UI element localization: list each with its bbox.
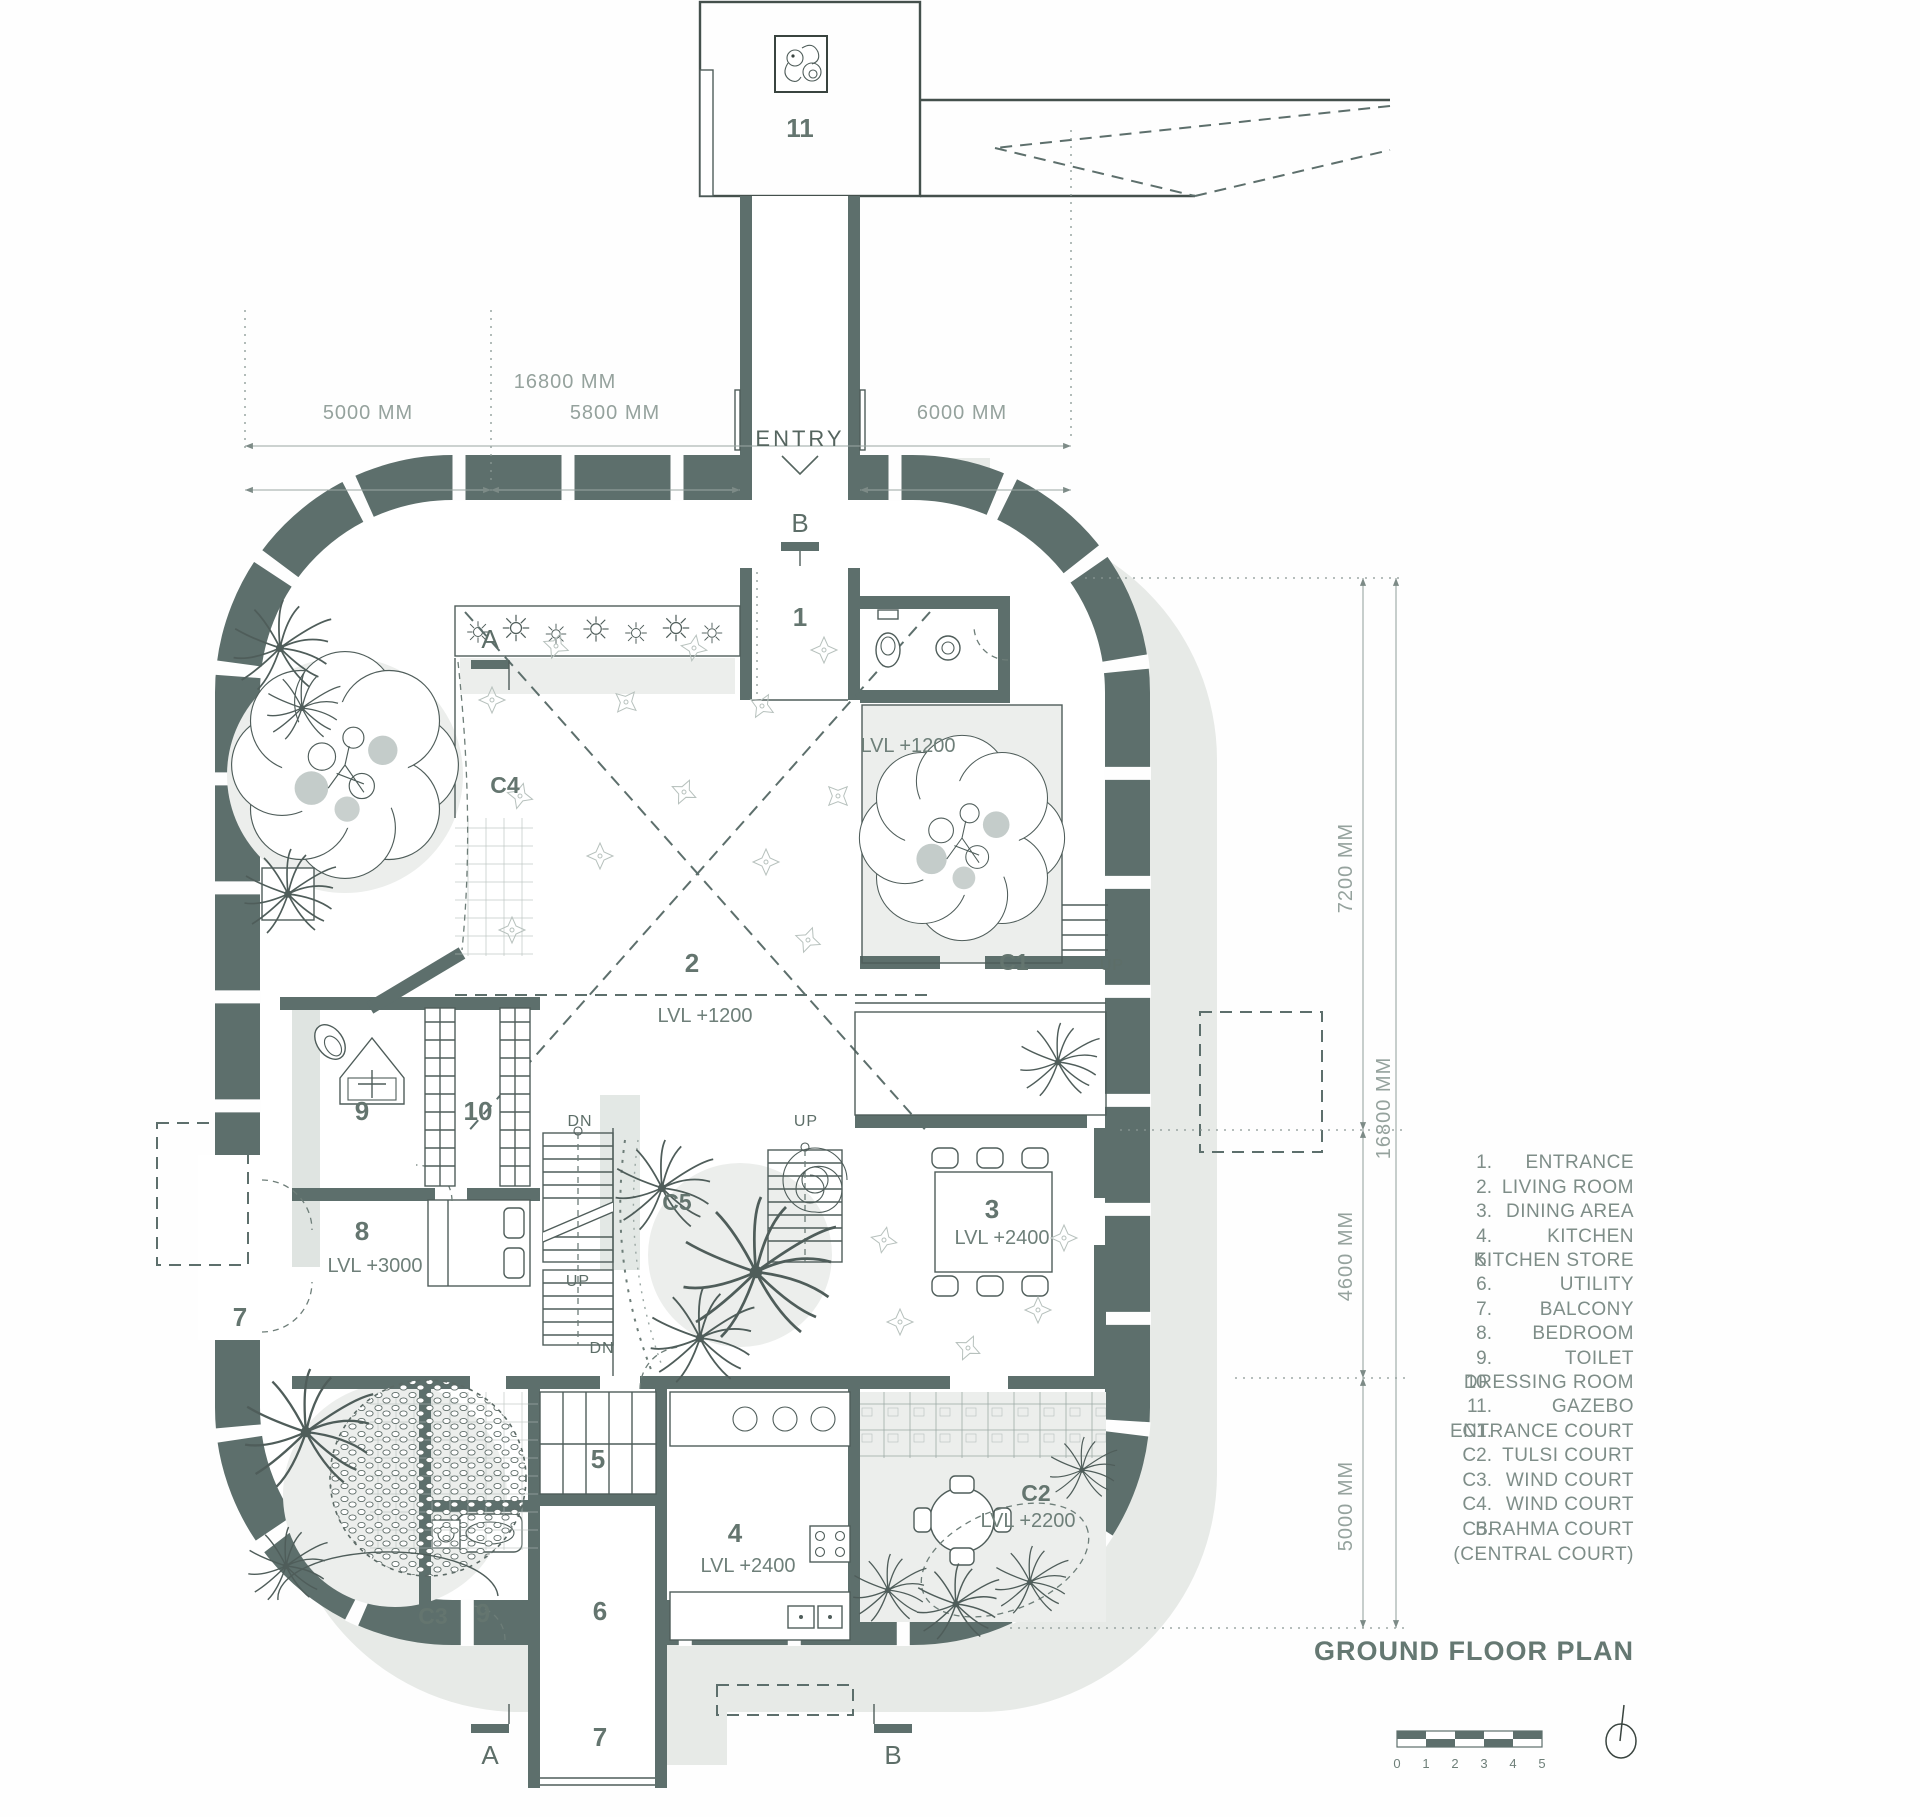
legend-num: C4. bbox=[1462, 1494, 1492, 1515]
room-label-living: 2 bbox=[685, 948, 699, 978]
dim-top-total: 16800 MM bbox=[514, 371, 617, 393]
section-b-top: B bbox=[791, 508, 808, 538]
court-label-c2: C2 bbox=[1021, 1480, 1050, 1506]
page-title: GROUND FLOOR PLAN bbox=[1314, 1636, 1634, 1666]
room-label-balcony-left: 7 bbox=[233, 1302, 247, 1332]
section-b-bottom: B bbox=[884, 1740, 901, 1770]
court-label-c3: C3 bbox=[418, 1603, 447, 1629]
north-indicator bbox=[1606, 1705, 1636, 1758]
legend-label: LIVING ROOM bbox=[1502, 1177, 1634, 1198]
stair-dn-1: DN bbox=[567, 1113, 592, 1130]
room-label-entrance: 1 bbox=[793, 602, 807, 632]
court-label-c5: C5 bbox=[662, 1189, 692, 1215]
stair-up-3: UP bbox=[1100, 957, 1124, 974]
court-label-c4: C4 bbox=[490, 772, 520, 798]
room-label-dining: 3 bbox=[985, 1194, 999, 1224]
legend-label: BALCONY bbox=[1540, 1299, 1634, 1320]
level-tulsi: LVL +2200 bbox=[980, 1510, 1075, 1532]
legend-label: ENTRANCE COURT bbox=[1450, 1421, 1634, 1442]
driveway-lines bbox=[920, 100, 1390, 196]
scale-tick: 1 bbox=[1422, 1756, 1429, 1771]
room-label-toilet-top: 9 bbox=[355, 1096, 369, 1126]
room-label-kitchen: 4 bbox=[728, 1518, 743, 1548]
gazebo-elephant-icon bbox=[775, 36, 827, 92]
level-dining: LVL +2400 bbox=[954, 1227, 1049, 1249]
legend-num: 11. bbox=[1467, 1396, 1492, 1417]
dim-top-5800: 5800 MM bbox=[570, 402, 660, 424]
section-a-top: A bbox=[481, 624, 499, 654]
room-kitchen-store bbox=[540, 1392, 656, 1494]
scale-tick: 0 bbox=[1393, 1756, 1400, 1771]
room-label-balcony-bottom: 7 bbox=[593, 1722, 607, 1752]
floor-plan-canvas: 16800 MM 5000 MM 5800 MM 6000 MM 7200 MM… bbox=[0, 0, 1920, 1817]
legend-num: 3. bbox=[1476, 1201, 1492, 1222]
legend-num: C3. bbox=[1462, 1470, 1492, 1491]
room-label-bedroom: 8 bbox=[355, 1216, 369, 1246]
legend-note: (CENTRAL COURT) bbox=[1453, 1544, 1634, 1565]
dim-right-7200: 7200 MM bbox=[1335, 823, 1357, 913]
level-kitchen: LVL +2400 bbox=[700, 1555, 795, 1577]
entry-label: ENTRY bbox=[755, 426, 844, 451]
legend-num: 9. bbox=[1476, 1348, 1492, 1369]
legend-num: 1. bbox=[1476, 1152, 1492, 1173]
legend-label: WIND COURT bbox=[1506, 1470, 1634, 1491]
dim-right-5000: 5000 MM bbox=[1335, 1461, 1357, 1551]
room-entrance bbox=[752, 568, 848, 700]
stair-up-2: UP bbox=[566, 1273, 590, 1290]
scale-tick: 3 bbox=[1480, 1756, 1487, 1771]
legend-label: WIND COURT bbox=[1506, 1494, 1634, 1515]
court-label-c1: C1 bbox=[999, 949, 1029, 975]
legend-label: DRESSING ROOM bbox=[1464, 1372, 1634, 1393]
legend-label: BRAHMA COURT bbox=[1475, 1519, 1634, 1540]
legend-label: TULSI COURT bbox=[1502, 1445, 1634, 1466]
room-label-store: 5 bbox=[591, 1444, 605, 1474]
legend-num: 4. bbox=[1476, 1226, 1492, 1247]
stair-up-1: UP bbox=[794, 1113, 818, 1130]
ground-floor-plan-sheet: 16800 MM 5000 MM 5800 MM 6000 MM 7200 MM… bbox=[0, 0, 1920, 1817]
level-entrance-court: LVL +1200 bbox=[860, 735, 955, 757]
room-label-gazebo: 11 bbox=[786, 113, 814, 143]
section-a-bottom: A bbox=[481, 1740, 499, 1770]
dim-right-total: 16800 MM bbox=[1373, 1057, 1395, 1160]
legend-label: TOILET bbox=[1565, 1348, 1634, 1369]
dim-top-5000: 5000 MM bbox=[323, 402, 413, 424]
dim-top-6000: 6000 MM bbox=[917, 402, 1007, 424]
legend-label: KITCHEN STORE bbox=[1474, 1250, 1634, 1271]
level-living: LVL +1200 bbox=[657, 1005, 752, 1027]
legend-label: DINING AREA bbox=[1506, 1201, 1634, 1222]
legend-label: KITCHEN bbox=[1547, 1226, 1634, 1247]
legend: 1. ENTRANCE 2. LIVING ROOM 3. DINING ARE… bbox=[1450, 1152, 1634, 1565]
dim-right-4600: 4600 MM bbox=[1335, 1211, 1357, 1301]
legend-num: 8. bbox=[1476, 1323, 1492, 1344]
legend-label: BEDROOM bbox=[1532, 1323, 1634, 1344]
room-label-dressing: 10 bbox=[464, 1096, 493, 1126]
legend-label: GAZEBO bbox=[1552, 1396, 1634, 1417]
scale-tick: 4 bbox=[1509, 1756, 1516, 1771]
room-label-toilet-bottom: 9 bbox=[476, 1598, 490, 1628]
dimension-top: 16800 MM 5000 MM 5800 MM 6000 MM bbox=[245, 130, 1071, 490]
level-bedroom: LVL +3000 bbox=[327, 1255, 422, 1277]
legend-num: 2. bbox=[1476, 1177, 1492, 1198]
gazebo bbox=[700, 2, 920, 196]
stair-dn-2: DN bbox=[589, 1340, 614, 1357]
legend-num: C2. bbox=[1462, 1445, 1492, 1466]
scale-bar: 0 1 2 3 4 5 bbox=[1393, 1731, 1545, 1771]
room-label-utility: 6 bbox=[593, 1596, 607, 1626]
legend-label: UTILITY bbox=[1560, 1274, 1634, 1295]
scale-tick: 2 bbox=[1451, 1756, 1458, 1771]
legend-label: ENTRANCE bbox=[1525, 1152, 1634, 1173]
scale-tick: 5 bbox=[1538, 1756, 1545, 1771]
legend-num: 6. bbox=[1476, 1274, 1492, 1295]
legend-num: 7. bbox=[1476, 1299, 1492, 1320]
